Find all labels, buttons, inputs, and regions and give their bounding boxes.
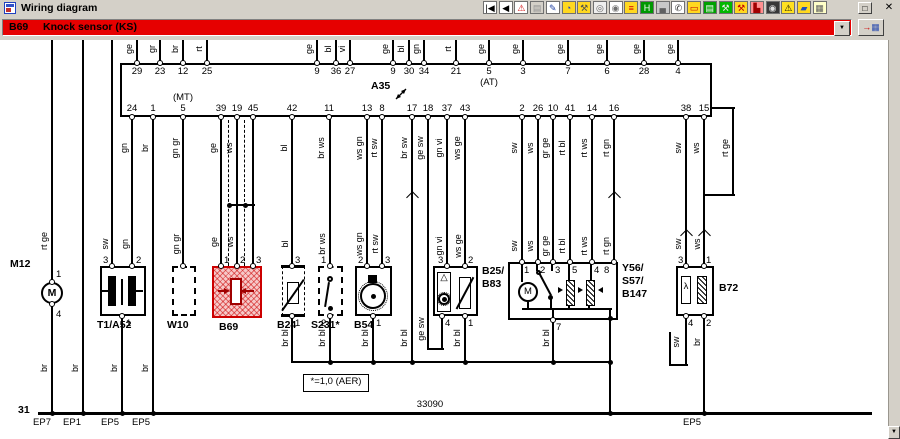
wire-color-label: ge: [208, 118, 218, 178]
junction-dot: [463, 360, 468, 365]
wire-segment: [613, 117, 615, 262]
wire-color-label: ge: [510, 19, 520, 79]
wire-segment: [537, 117, 539, 262]
coil-symbol: [566, 280, 575, 306]
junction-dot: [328, 306, 333, 311]
junction-dot: [371, 294, 376, 299]
footnote-text: *=1,0 (AER): [304, 376, 368, 387]
component-pin-number: 1: [295, 318, 300, 329]
wire-color-label: ge: [665, 19, 675, 79]
wire-color-label: ge sw: [415, 118, 425, 178]
wire-segment: [38, 412, 872, 415]
wire-color-label: br bl: [541, 308, 551, 368]
wire-color-label: br: [109, 338, 119, 398]
motor-letter: M: [42, 287, 62, 299]
wire-color-label: gn gr: [170, 118, 180, 178]
wire-segment: [569, 117, 571, 262]
wire-color-label: br: [692, 312, 702, 372]
gearbox-note: (AT): [476, 77, 502, 88]
wire-color-label: rt ws: [579, 216, 589, 276]
terminal: [49, 301, 55, 307]
terminal: [444, 114, 450, 120]
ecu-pin-number: 1: [142, 103, 164, 114]
wire-color-label: ws: [525, 216, 535, 276]
wire-color-label: ge: [304, 19, 314, 79]
wire-color-label: sw: [509, 118, 519, 178]
component-pin-number: 2: [136, 255, 141, 266]
tester-icon[interactable]: ✆: [671, 1, 685, 14]
wire-color-label: gn vi: [434, 216, 444, 276]
wire-color-label: ws ge: [452, 118, 462, 178]
wire-color-label: bl: [323, 19, 333, 79]
wire-color-label: rt gn: [601, 216, 611, 276]
component-pin-number: 2: [468, 255, 473, 266]
ecu-pin-number: 43: [454, 103, 476, 114]
caution-icon[interactable]: ⚠: [781, 1, 795, 14]
coil-arrow-icon: [558, 287, 563, 293]
wire-color-label: rt: [443, 19, 453, 79]
repair-tools-icon[interactable]: ⚒: [734, 1, 748, 14]
wire-segment: [136, 290, 143, 292]
ecu-pin-number: 5: [172, 103, 194, 114]
wire-segment: [591, 117, 593, 262]
wire-color-label: ge: [594, 19, 604, 79]
wire-segment: [366, 117, 368, 266]
wire-color-label: gr ge: [540, 216, 550, 276]
wire-segment: [464, 316, 466, 363]
wire-segment: [609, 320, 611, 414]
page-disabled-icon[interactable]: ▤: [530, 1, 544, 14]
wire-color-label: ge: [209, 212, 219, 272]
steering-wheel-icon[interactable]: ◉: [766, 1, 780, 14]
current-track-number: 33090: [400, 399, 460, 410]
workshop-icon[interactable]: ⚒: [719, 1, 733, 14]
wire-segment: [427, 117, 429, 350]
wire-color-label: br: [70, 338, 80, 398]
wire-color-label: rt bl: [557, 118, 567, 178]
wire-color-label: sw: [100, 214, 110, 274]
wire-segment: [521, 117, 523, 262]
warning-icon[interactable]: ⚠: [514, 1, 528, 14]
ecu-pin-number: 42: [281, 103, 303, 114]
window-title: Wiring diagram: [21, 2, 97, 14]
wire-color-label: br: [39, 338, 49, 398]
dropdown-button[interactable]: ▼: [834, 21, 850, 36]
earth-point-label: EP1: [54, 417, 90, 428]
wire-color-label: br: [170, 19, 180, 79]
wire-color-label: rt gn: [601, 118, 611, 178]
component-label: Y56/: [622, 262, 644, 274]
junction-dot: [442, 297, 447, 302]
seat-icon[interactable]: ▙: [750, 1, 764, 14]
coil-arrow-icon: [598, 287, 603, 293]
wire-color-label: ws: [224, 118, 234, 178]
wire-segment: [381, 117, 383, 266]
wire-color-label: rt bl: [557, 216, 567, 276]
component-label: M12: [10, 258, 30, 270]
wire-color-label: rt sw: [369, 118, 379, 178]
wire-segment: [588, 306, 590, 310]
wire-color-label: ge: [476, 19, 486, 79]
terminal: [379, 114, 385, 120]
component-label: W10: [167, 319, 189, 331]
wiring-diagram-canvas: A3529ge23gr12br25rt9ge36bl27vi9ge30bl34g…: [0, 40, 888, 439]
wire-segment: [101, 290, 108, 292]
prev-record-icon[interactable]: ◀: [499, 1, 513, 14]
wire-color-label: sw: [673, 118, 683, 178]
wire-color-label: sw: [673, 214, 683, 274]
wire-color-label: ws: [225, 212, 235, 272]
wire-segment: [111, 40, 113, 266]
terminal: [129, 114, 135, 120]
wire-color-label: ge: [124, 19, 134, 79]
component-pin-number: 1: [126, 318, 131, 329]
component-pin-number: 1: [706, 255, 711, 266]
component-code: B69: [9, 21, 28, 33]
component-label: B69: [219, 321, 238, 333]
vertical-scrollbar[interactable]: [888, 40, 900, 439]
component-label: S57/: [622, 275, 644, 287]
wire-color-label: bl: [279, 118, 289, 178]
goto-arrow-icon: →: [862, 22, 871, 32]
wire-color-label: gn vi: [434, 118, 444, 178]
component-label: B72: [719, 282, 738, 294]
wire-segment: [703, 117, 705, 266]
junction-dot: [608, 360, 613, 365]
wire-segment: [252, 117, 254, 207]
terminal: [326, 114, 332, 120]
ecu-pin-number: 41: [559, 103, 581, 114]
coil-symbol: [586, 280, 595, 306]
terminal: [150, 114, 156, 120]
wire-segment: [703, 316, 705, 414]
junction-dot: [551, 360, 556, 365]
flow-arrow-icon: [406, 191, 419, 204]
component-pin-number: 2: [240, 255, 245, 266]
junction-dot: [50, 411, 55, 416]
car-icon[interactable]: ▰: [797, 1, 811, 14]
wire-color-label: bl: [280, 214, 290, 274]
wire-segment: [732, 108, 734, 196]
wire-color-label: gn: [411, 19, 421, 79]
terminal: [550, 114, 556, 120]
wire-segment: [411, 117, 413, 363]
earth-point-label: EP5: [123, 417, 159, 428]
edit-pencil-icon[interactable]: ✎: [546, 1, 560, 14]
wire-segment: [51, 40, 53, 282]
wire-color-label: br: [140, 338, 150, 398]
terminal: [567, 114, 573, 120]
close-button[interactable]: ✕: [882, 2, 896, 14]
wire-color-label: ge sw: [416, 299, 426, 359]
wire-segment: [152, 117, 154, 414]
component-pin-number: 1: [376, 318, 381, 329]
ecu-pin-number: 11: [318, 103, 340, 114]
vehicle-front-icon[interactable]: ▄: [656, 1, 670, 14]
component-pin-number: 5: [572, 265, 577, 276]
wire-color-label: rt sw: [370, 214, 380, 274]
terminal: [462, 114, 468, 120]
wire-color-label: br bl: [280, 308, 290, 368]
goto-diagram-button[interactable]: →▦: [858, 19, 884, 36]
printer-icon[interactable]: ▤: [703, 1, 717, 14]
wire-color-label: gn gr: [171, 214, 181, 274]
junction-dot: [410, 360, 415, 365]
lambda-letter: λ: [681, 281, 691, 292]
wire-color-label: gn: [119, 118, 129, 178]
wire-segment: [441, 316, 443, 350]
wire-segment: [712, 107, 735, 109]
wire-segment: [131, 117, 133, 266]
component-label: B83: [482, 278, 501, 290]
terminal: [611, 259, 617, 265]
component-label: B147: [622, 288, 647, 300]
flow-arrow-icon: [608, 191, 621, 204]
wire-color-label: sw: [671, 312, 681, 372]
terminal: [49, 279, 55, 285]
ecu-pin-number: 8: [371, 103, 393, 114]
wire-segment: [568, 306, 570, 310]
wire-color-label: ws: [691, 118, 701, 178]
terminal: [444, 263, 450, 269]
component-name: Knock sensor (KS): [43, 21, 137, 33]
shield-dashed-line: [244, 120, 245, 266]
schedule-icon[interactable]: ▦: [813, 1, 827, 14]
component-pin-number: 4: [594, 265, 599, 276]
scrollbar-down-button[interactable]: ▼: [888, 426, 900, 439]
wire-segment: [522, 308, 612, 310]
component-pin-number: 4: [56, 309, 61, 320]
wire-color-label: vi: [337, 19, 347, 79]
component-pin-number: 3: [385, 255, 390, 266]
wire-color-label: ws gn: [354, 214, 364, 274]
wheel-icon[interactable]: ◎: [593, 1, 607, 14]
sensor-square: [368, 275, 377, 283]
knock-arrow-icon: [240, 288, 246, 294]
chevron-down-icon: ▼: [839, 25, 845, 31]
component-label: B25/: [482, 265, 504, 277]
junction-dot: [81, 411, 86, 416]
first-record-icon[interactable]: |◀: [483, 1, 497, 14]
component-pin-number: 2: [706, 318, 711, 329]
wire-color-label: br bl: [399, 308, 409, 368]
connector-bar: [128, 276, 136, 306]
wire-segment: [252, 205, 254, 266]
gearbox-note: (MT): [170, 92, 196, 103]
wire-segment: [291, 117, 293, 266]
junction-dot: [151, 411, 156, 416]
coil-arrow-icon: [578, 287, 583, 293]
junction-dot: [227, 203, 232, 208]
component-pin-number: 3: [256, 255, 261, 266]
terminal: [589, 114, 595, 120]
wire-color-label: ws: [692, 214, 702, 274]
component-pin-number: 3: [295, 255, 300, 266]
knock-arrow-icon: [224, 288, 230, 294]
wire-segment: [220, 117, 222, 266]
terminal: [701, 114, 707, 120]
wire-color-label: gr: [147, 19, 157, 79]
ecu-label: A35: [371, 80, 390, 92]
wire-color-label: rt ge: [39, 211, 49, 271]
wire-segment: [82, 40, 84, 414]
wire-segment: [329, 117, 331, 266]
terminal: [250, 114, 256, 120]
ecu-pin-number: 45: [242, 103, 264, 114]
goto-grid-icon: ▦: [871, 22, 880, 32]
component-box-b24: [304, 266, 305, 316]
wire-segment: [428, 348, 444, 350]
wire-color-label: ge: [555, 19, 565, 79]
wire-color-label: br bl: [317, 308, 327, 368]
heater-resistor: [697, 276, 707, 304]
wire-segment: [51, 304, 53, 414]
earth-point-label: EP5: [674, 417, 710, 428]
wire-segment: [685, 117, 687, 266]
wire-color-label: br: [140, 118, 150, 178]
app-icon: [4, 2, 16, 14]
gauge-icon[interactable]: ◔: [562, 1, 576, 14]
connector-bar: [108, 276, 116, 306]
ground-terminal-label: 31: [18, 404, 30, 416]
wire-color-label: gn: [120, 214, 130, 274]
wire-color-label: ge: [380, 19, 390, 79]
wire-color-label: ws ge: [453, 216, 463, 276]
ramp-icon[interactable]: ≡: [624, 1, 638, 14]
ecu-pin-number: 16: [603, 103, 625, 114]
title-bar: Wiring diagram |◀◀⚠▤✎◔⚒◎◉≡H▄✆▭▤⚒⚒▙◉⚠▰▦ □…: [0, 0, 900, 17]
restore-button[interactable]: □: [858, 2, 872, 14]
component-pin-number: 1: [468, 318, 473, 329]
terminal: [425, 114, 431, 120]
terminal: [289, 114, 295, 120]
wire-color-label: br sw: [399, 118, 409, 178]
wire-color-label: ws gn: [354, 118, 364, 178]
wire-color-label: br bl: [452, 308, 462, 368]
junction-dot: [702, 411, 707, 416]
wire-color-label: rt: [194, 19, 204, 79]
wire-color-label: br ws: [316, 118, 326, 178]
junction-dot: [608, 411, 613, 416]
wire-color-label: sw: [509, 216, 519, 276]
junction-dot: [371, 360, 376, 365]
wire-segment: [552, 320, 554, 363]
app-window: Wiring diagram |◀◀⚠▤✎◔⚒◎◉≡H▄✆▭▤⚒⚒▙◉⚠▰▦ □…: [0, 0, 900, 439]
wire-color-label: ws: [525, 118, 535, 178]
component-pin-number: 1: [56, 269, 61, 280]
wire-color-label: gr ge: [540, 118, 550, 178]
component-pin-number: 4: [445, 318, 450, 329]
wire-color-label: br bl: [360, 308, 370, 368]
battery-icon[interactable]: ▭: [687, 1, 701, 14]
wire-segment: [121, 279, 123, 305]
motor-letter: M: [519, 286, 537, 297]
wire-color-label: ge: [631, 19, 641, 79]
terminal: [234, 114, 240, 120]
tools-icon[interactable]: ⚒: [577, 1, 591, 14]
terminal: [683, 114, 689, 120]
junction-dot: [608, 316, 613, 321]
wire-segment: [685, 316, 687, 366]
wire-color-label: rt ge: [720, 118, 730, 178]
terminal: [611, 114, 617, 120]
junction-dot: [120, 411, 125, 416]
wire-segment: [182, 117, 184, 266]
wire-segment: [446, 117, 448, 266]
scroll-down-icon: ▼: [891, 429, 897, 435]
wire-segment: [521, 262, 523, 282]
wire-segment: [552, 117, 554, 262]
terminal: [180, 114, 186, 120]
wire-color-label: br ws: [317, 214, 327, 274]
ecu-pin-number: 15: [693, 103, 715, 114]
terminal: [327, 263, 333, 269]
wire-color-label: rt ws: [579, 118, 589, 178]
junction-dot: [328, 360, 333, 365]
component-pin-number: 7: [556, 322, 561, 333]
wire-segment: [704, 194, 735, 196]
wheel-wrench-icon[interactable]: ◉: [609, 1, 623, 14]
connector-symbol: [392, 86, 410, 102]
junction-dot: [243, 203, 248, 208]
wire-segment: [236, 117, 238, 266]
wire-color-label: bl: [396, 19, 406, 79]
ecu-pin-number: 24: [121, 103, 143, 114]
wire-segment: [464, 117, 466, 266]
lift-icon[interactable]: H: [640, 1, 654, 14]
ecu-pin-number: 14: [581, 103, 603, 114]
terminal: [683, 263, 689, 269]
